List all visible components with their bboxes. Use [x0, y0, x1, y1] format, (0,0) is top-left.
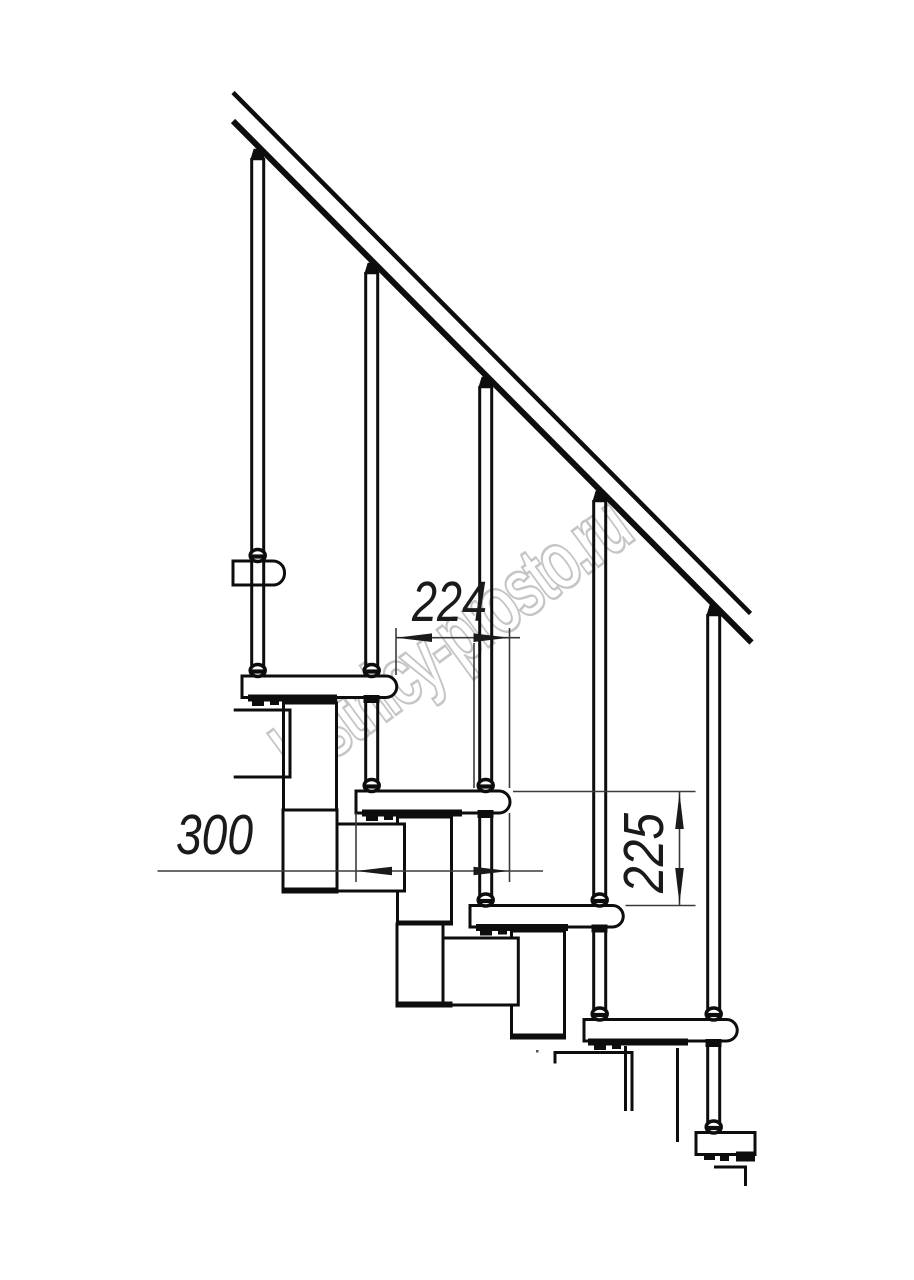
svg-text:224: 224 — [411, 570, 487, 634]
svg-text:225: 225 — [612, 813, 676, 894]
svg-text:300: 300 — [176, 803, 253, 867]
